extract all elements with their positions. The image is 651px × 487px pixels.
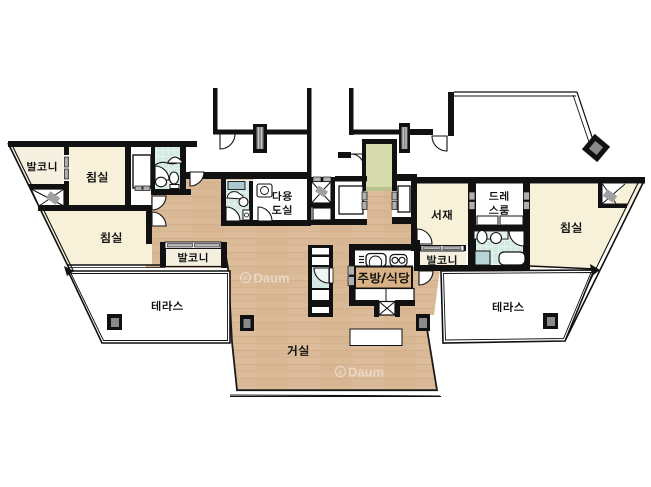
- svg-text:Daum: Daum: [254, 271, 290, 286]
- svg-text:c: c: [338, 368, 342, 377]
- svg-text:Daum: Daum: [348, 365, 384, 380]
- svg-text:c: c: [243, 274, 247, 283]
